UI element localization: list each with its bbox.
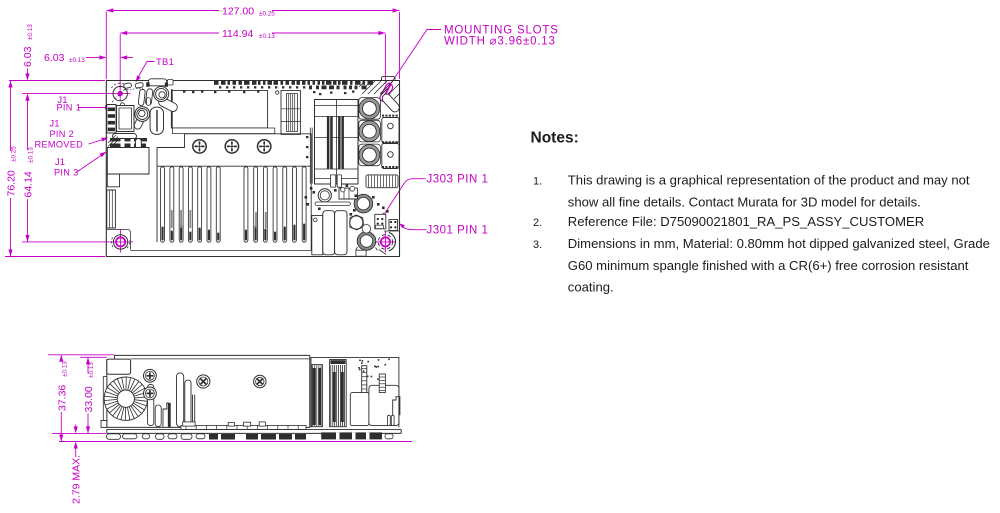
svg-text:±0.13: ±0.13 <box>28 147 35 163</box>
svg-text:PIN 3: PIN 3 <box>54 168 78 178</box>
svg-text:3.: 3. <box>533 239 542 251</box>
svg-text:±0.13: ±0.13 <box>27 24 34 40</box>
svg-text:TB1: TB1 <box>156 56 174 67</box>
svg-text:REMOVED: REMOVED <box>35 140 84 150</box>
svg-text:PIN 2: PIN 2 <box>50 129 74 139</box>
svg-text:J303 PIN 1: J303 PIN 1 <box>427 174 489 186</box>
svg-text:127.00: 127.00 <box>222 6 254 18</box>
svg-text:6.03: 6.03 <box>22 46 34 67</box>
svg-text:1.: 1. <box>533 176 542 188</box>
svg-text:76.20: 76.20 <box>6 170 18 196</box>
svg-text:2.79 MAX.: 2.79 MAX. <box>71 455 83 504</box>
svg-text:33.00: 33.00 <box>83 386 95 412</box>
svg-text:Reference File: D75090021801_R: Reference File: D75090021801_RA_PS_ASSY_… <box>568 214 924 229</box>
svg-text:6.03: 6.03 <box>44 52 65 64</box>
svg-text:J1: J1 <box>55 157 65 167</box>
svg-text:coating.: coating. <box>568 280 614 295</box>
svg-text:±0.13: ±0.13 <box>61 361 68 377</box>
svg-text:Notes:: Notes: <box>531 130 579 147</box>
svg-text:37.36: 37.36 <box>56 385 68 411</box>
svg-text:This drawing is a graphical re: This drawing is a graphical representati… <box>568 173 970 188</box>
svg-text:G60 minimum spangle finished w: G60 minimum spangle finished with a CR(6… <box>568 258 969 273</box>
svg-text:Dimensions in mm, Material: 0.: Dimensions in mm, Material: 0.80mm hot d… <box>568 236 990 251</box>
svg-text:J1: J1 <box>50 119 60 129</box>
svg-text:±0.13: ±0.13 <box>69 57 85 64</box>
svg-text:J301 PIN 1: J301 PIN 1 <box>427 225 489 237</box>
svg-text:PIN 1: PIN 1 <box>57 103 81 113</box>
svg-text:±0.13: ±0.13 <box>88 362 95 378</box>
svg-text:64.14: 64.14 <box>23 171 35 197</box>
svg-text:show all fine details. Contact: show all fine details. Contact Murata fo… <box>568 195 921 210</box>
svg-text:±0.25: ±0.25 <box>11 146 18 162</box>
svg-text:WIDTH ⌀3.96±0.13: WIDTH ⌀3.96±0.13 <box>444 36 556 48</box>
svg-text:2.: 2. <box>533 217 542 229</box>
svg-text:114.94: 114.94 <box>222 28 253 40</box>
svg-text:±0.13: ±0.13 <box>259 33 275 40</box>
svg-text:±0.25: ±0.25 <box>259 11 275 18</box>
